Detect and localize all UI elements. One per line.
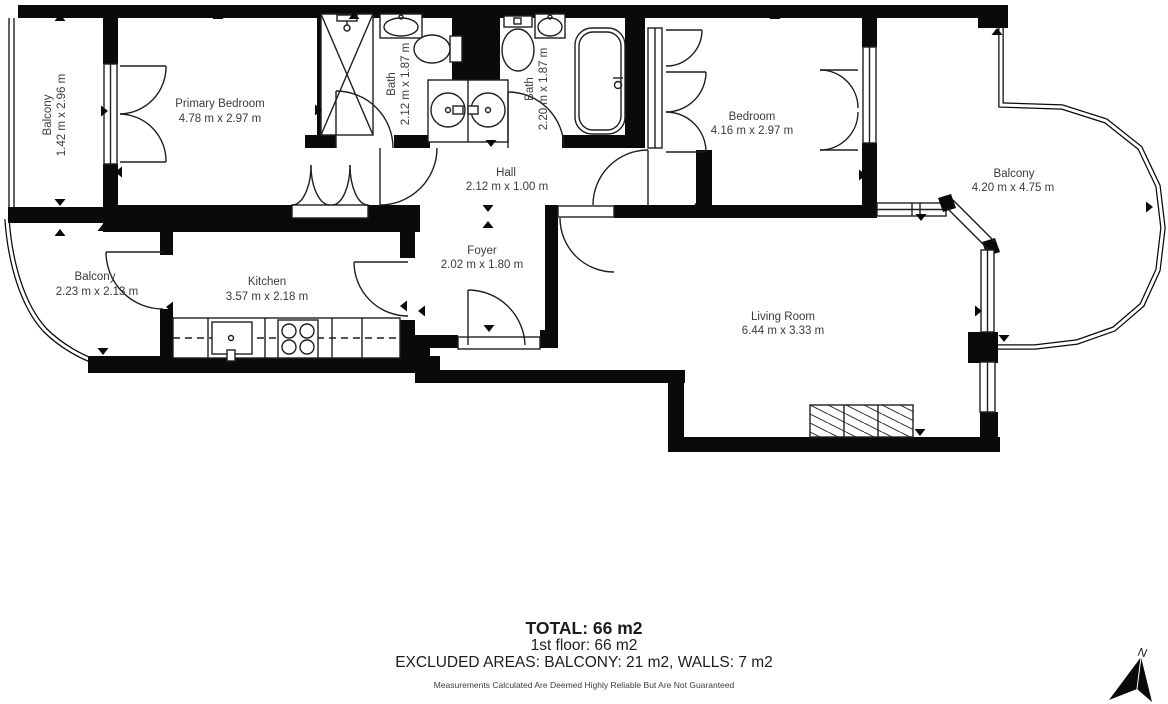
sink-bath2 bbox=[535, 14, 565, 38]
room-label-balcony-lower: Balcony bbox=[75, 271, 116, 283]
summary-block: TOTAL: 66 m2 1st floor: 66 m2 EXCLUDED A… bbox=[0, 619, 1168, 690]
bath2-door bbox=[508, 92, 564, 148]
washer-niche bbox=[428, 80, 508, 142]
window-living-top bbox=[877, 203, 946, 216]
bedroom-closet-doors bbox=[666, 30, 706, 152]
primary-bedroom-closet-doors bbox=[120, 66, 166, 162]
hall-east-door bbox=[593, 150, 648, 205]
living-room-hatched-unit bbox=[810, 405, 913, 437]
window-living-diagonal bbox=[938, 194, 1000, 256]
window-living-right-upper bbox=[981, 250, 994, 332]
bedroom-closet-column bbox=[648, 28, 662, 148]
toilet-bath2 bbox=[502, 16, 534, 71]
room-label-kitchen: Kitchen bbox=[248, 276, 286, 288]
room-label-bath-1: Bath bbox=[386, 72, 398, 96]
excluded-areas-text: EXCLUDED AREAS: BALCONY: 21 m2, WALLS: 7… bbox=[0, 654, 1168, 671]
room-label-foyer: Foyer bbox=[467, 245, 497, 257]
stove-icon bbox=[278, 320, 318, 358]
sink-bath1 bbox=[380, 14, 422, 38]
total-area-text: TOTAL: 66 m2 bbox=[0, 619, 1168, 637]
entry-door bbox=[458, 290, 540, 349]
room-dims-foyer: 2.02 m x 1.80 m bbox=[441, 259, 523, 271]
room-dims-balcony-lower: 2.23 m x 2.13 m bbox=[56, 286, 138, 298]
room-dims-balcony-left: 1.42 m x 2.96 m bbox=[56, 74, 68, 156]
window-living-right-lower bbox=[980, 362, 995, 412]
floorplan-drawing: Balcony 1.42 m x 2.96 m Primary Bedroom … bbox=[0, 0, 1168, 704]
room-dims-living-room: 6.44 m x 3.33 m bbox=[742, 325, 824, 337]
disclaimer-text: Measurements Calculated Are Deemed Highl… bbox=[0, 680, 1168, 690]
bedroom-wardrobe-doors bbox=[820, 70, 858, 150]
kitchen-counter bbox=[173, 318, 400, 361]
bathtub bbox=[575, 28, 625, 134]
shower bbox=[321, 14, 373, 135]
room-dims-primary-bedroom: 4.78 m x 2.97 m bbox=[179, 113, 261, 125]
room-label-hall: Hall bbox=[496, 167, 516, 179]
room-label-bath-2: Bath bbox=[524, 77, 536, 101]
room-label-living-room: Living Room bbox=[751, 311, 815, 323]
room-dims-kitchen: 3.57 m x 2.18 m bbox=[226, 291, 308, 303]
living-room-door bbox=[558, 206, 614, 272]
room-label-balcony-left: Balcony bbox=[42, 94, 54, 135]
room-label-balcony-right: Balcony bbox=[994, 168, 1035, 180]
room-dims-hall: 2.12 m x 1.00 m bbox=[466, 181, 548, 193]
room-dims-bath-1: 2.12 m x 1.87 m bbox=[400, 43, 412, 125]
hall-to-bedroom-door bbox=[380, 148, 437, 205]
kitchen-door bbox=[354, 262, 408, 316]
floorplan-page: Balcony 1.42 m x 2.96 m Primary Bedroom … bbox=[0, 0, 1168, 704]
room-label-bedroom: Bedroom bbox=[729, 111, 776, 123]
walls bbox=[8, 5, 1008, 452]
floor-area-text: 1st floor: 66 m2 bbox=[0, 637, 1168, 654]
primary-bedroom-wardrobe-doors bbox=[292, 165, 368, 218]
room-label-primary-bedroom: Primary Bedroom bbox=[175, 98, 264, 110]
window-bedroom-right bbox=[863, 47, 876, 143]
room-dims-bath-2: 2.20 m x 1.87 m bbox=[538, 48, 550, 130]
window-balcony-left bbox=[104, 64, 117, 164]
room-dims-balcony-right: 4.20 m x 4.75 m bbox=[972, 182, 1054, 194]
toilet-bath1 bbox=[414, 35, 462, 63]
room-dims-bedroom: 4.16 m x 2.97 m bbox=[711, 125, 793, 137]
